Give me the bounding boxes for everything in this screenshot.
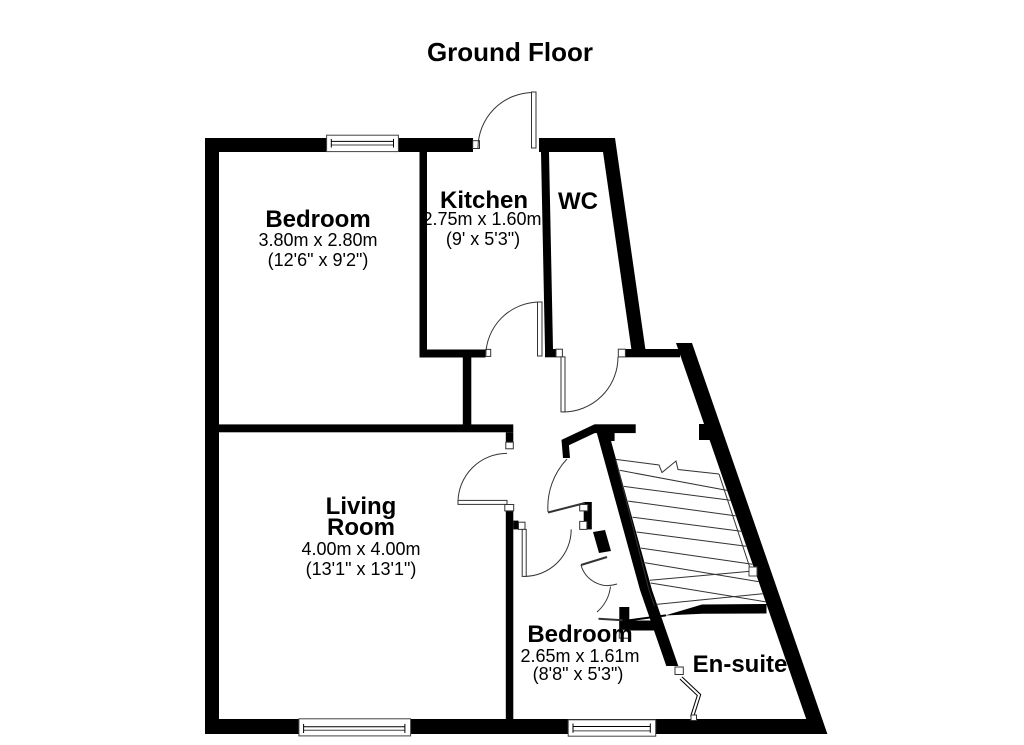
svg-text:WC: WC <box>558 188 598 215</box>
svg-text:Bedroom: Bedroom <box>265 206 370 233</box>
svg-text:(12'6" x 9'2"): (12'6" x 9'2") <box>268 250 369 270</box>
svg-text:(9' x 5'3"): (9' x 5'3") <box>446 229 520 249</box>
svg-text:En-suite: En-suite <box>693 651 788 678</box>
svg-text:3.80m x 2.80m: 3.80m x 2.80m <box>258 230 377 250</box>
svg-text:Ground Floor: Ground Floor <box>427 37 593 67</box>
svg-text:Bedroom: Bedroom <box>527 621 632 648</box>
svg-text:(13'1" x 13'1"): (13'1" x 13'1") <box>306 559 417 579</box>
svg-text:2.65m x 1.61m: 2.65m x 1.61m <box>520 646 639 666</box>
svg-text:Room: Room <box>327 514 395 541</box>
svg-text:4.00m x 4.00m: 4.00m x 4.00m <box>301 539 420 559</box>
svg-text:(8'8" x 5'3"): (8'8" x 5'3") <box>533 664 624 684</box>
svg-text:2.75m x 1.60m: 2.75m x 1.60m <box>422 209 541 229</box>
